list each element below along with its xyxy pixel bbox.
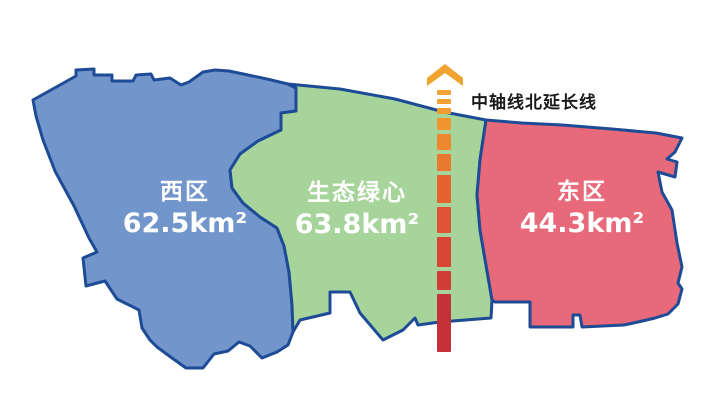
axis-dash	[437, 90, 451, 95]
axis-dash	[437, 207, 451, 233]
axis-dash	[437, 237, 451, 267]
chevron-up-icon	[427, 64, 463, 86]
axis-dash	[437, 154, 451, 171]
district-planning-map: 西区 62.5km² 生态绿心 63.8km² 东区 44.3km² 中轴线北延…	[0, 0, 718, 407]
axis-dash	[437, 175, 451, 203]
green-heart-label: 生态绿心 63.8km²	[295, 181, 420, 240]
axis-label: 中轴线北延长线	[471, 88, 597, 113]
axis-dash	[437, 294, 451, 352]
green-heart-name: 生态绿心	[295, 181, 420, 206]
axis-dash	[437, 99, 451, 104]
axis-dashed-line	[437, 90, 451, 352]
east-district-name: 东区	[520, 180, 645, 205]
axis-dash	[437, 271, 451, 290]
east-district-area: 44.3km²	[520, 209, 645, 239]
west-district-name: 西区	[123, 180, 248, 205]
green-heart-area: 63.8km²	[295, 210, 420, 240]
west-district-area: 62.5km²	[123, 209, 248, 239]
axis-dash	[437, 118, 451, 130]
axis-dash	[437, 108, 451, 114]
west-district-label: 西区 62.5km²	[123, 180, 248, 239]
axis-dash	[437, 134, 451, 150]
east-district-label: 东区 44.3km²	[520, 180, 645, 239]
